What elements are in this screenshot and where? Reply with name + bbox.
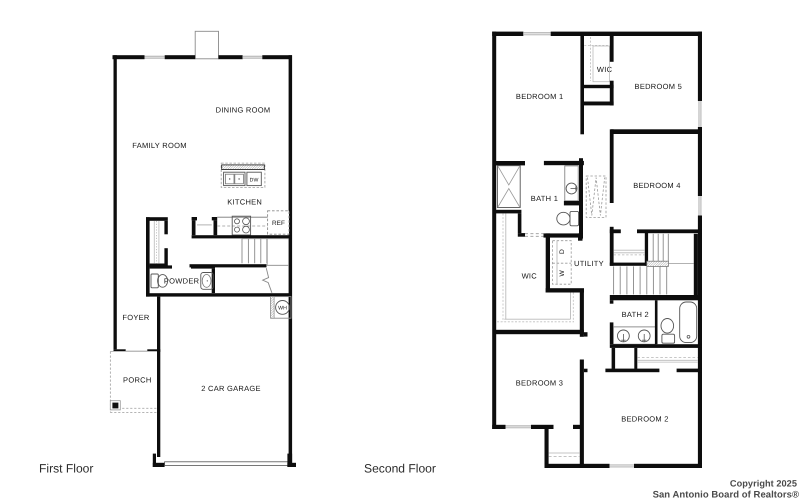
svg-text:FAMILY ROOM: FAMILY ROOM: [132, 141, 186, 150]
svg-text:UTILITY: UTILITY: [574, 259, 604, 268]
svg-text:BEDROOM 3: BEDROOM 3: [516, 378, 564, 387]
svg-text:BEDROOM 2: BEDROOM 2: [621, 415, 669, 424]
svg-text:REF: REF: [272, 220, 285, 227]
svg-text:FOYER: FOYER: [122, 313, 150, 322]
svg-text:Copyright 2025: Copyright 2025: [730, 479, 797, 489]
svg-text:BEDROOM 1: BEDROOM 1: [516, 92, 564, 101]
svg-text:KITCHEN: KITCHEN: [227, 197, 262, 206]
svg-text:WIC: WIC: [522, 272, 538, 281]
svg-text:First Floor: First Floor: [39, 462, 93, 476]
svg-text:BEDROOM 4: BEDROOM 4: [633, 181, 681, 190]
svg-text:POWDER: POWDER: [164, 277, 200, 286]
svg-text:Second Floor: Second Floor: [364, 462, 436, 476]
svg-text:DINING ROOM: DINING ROOM: [216, 106, 271, 115]
svg-text:BEDROOM 5: BEDROOM 5: [635, 82, 683, 91]
svg-text:PORCH: PORCH: [123, 376, 152, 385]
svg-text:BATH 1: BATH 1: [531, 194, 558, 203]
svg-text:DW: DW: [250, 177, 259, 183]
svg-text:San Antonio Board of Realtors®: San Antonio Board of Realtors®: [653, 489, 799, 500]
svg-text:2 CAR GARAGE: 2 CAR GARAGE: [201, 384, 261, 393]
svg-text:W: W: [559, 270, 566, 277]
svg-text:WIC: WIC: [597, 65, 613, 74]
svg-text:WH: WH: [278, 306, 287, 312]
svg-text:D: D: [559, 249, 566, 254]
svg-text:BATH 2: BATH 2: [622, 310, 649, 319]
